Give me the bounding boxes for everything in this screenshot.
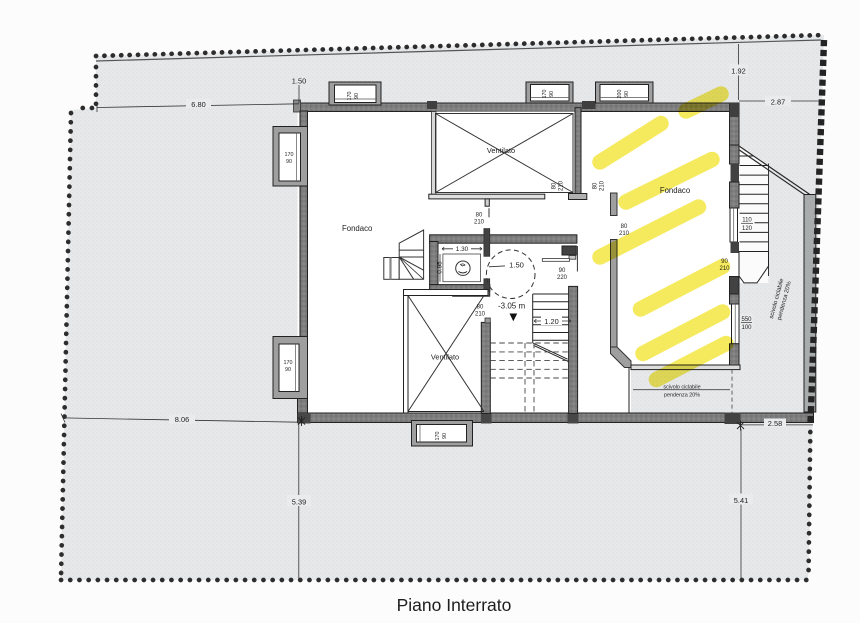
svg-text:8.06: 8.06 bbox=[175, 415, 189, 424]
svg-text:100: 100 bbox=[741, 325, 752, 331]
svg-text:90: 90 bbox=[549, 91, 555, 97]
svg-text:90: 90 bbox=[624, 91, 630, 97]
svg-text:1.50: 1.50 bbox=[292, 77, 306, 86]
svg-text:2.58: 2.58 bbox=[768, 419, 782, 428]
svg-text:Ventilato: Ventilato bbox=[487, 146, 515, 155]
svg-text:scivolo ciclabile: scivolo ciclabile bbox=[663, 384, 700, 390]
svg-text:90: 90 bbox=[286, 159, 292, 165]
svg-text:210: 210 bbox=[474, 220, 485, 226]
svg-text:1.92: 1.92 bbox=[731, 67, 745, 76]
svg-text:6.80: 6.80 bbox=[191, 100, 205, 109]
svg-text:1.30: 1.30 bbox=[456, 246, 469, 253]
svg-text:pendenza 20%: pendenza 20% bbox=[664, 392, 700, 398]
svg-text:5.41: 5.41 bbox=[734, 496, 748, 505]
svg-text:Fondaco: Fondaco bbox=[342, 224, 373, 233]
svg-text:80: 80 bbox=[552, 182, 558, 189]
svg-text:0.95: 0.95 bbox=[437, 261, 444, 274]
svg-text:200: 200 bbox=[617, 90, 623, 99]
svg-text:Piano Interrato: Piano Interrato bbox=[397, 595, 512, 615]
svg-text:170: 170 bbox=[285, 152, 294, 158]
svg-text:220: 220 bbox=[557, 275, 568, 281]
svg-text:80: 80 bbox=[477, 305, 484, 311]
svg-text:80: 80 bbox=[476, 213, 483, 219]
svg-text:90: 90 bbox=[442, 433, 448, 439]
svg-text:5.39: 5.39 bbox=[292, 498, 306, 507]
svg-text:210: 210 bbox=[559, 180, 565, 191]
svg-text:90: 90 bbox=[559, 268, 566, 274]
svg-text:80: 80 bbox=[621, 224, 628, 230]
svg-text:1.20: 1.20 bbox=[544, 317, 558, 326]
svg-text:Fondaco: Fondaco bbox=[660, 186, 691, 195]
svg-text:170: 170 bbox=[284, 360, 293, 366]
svg-text:Ventilato: Ventilato bbox=[431, 353, 459, 362]
svg-text:80: 80 bbox=[593, 182, 599, 189]
svg-text:110: 110 bbox=[742, 218, 752, 224]
svg-text:210: 210 bbox=[600, 180, 606, 191]
svg-text:550: 550 bbox=[741, 317, 752, 323]
svg-text:1.50: 1.50 bbox=[509, 261, 524, 270]
svg-text:90: 90 bbox=[354, 93, 360, 99]
svg-text:170: 170 bbox=[347, 92, 353, 101]
svg-text:-3.05 m: -3.05 m bbox=[498, 302, 525, 311]
svg-text:170: 170 bbox=[542, 90, 548, 99]
svg-text:170: 170 bbox=[435, 432, 441, 441]
svg-text:90: 90 bbox=[285, 367, 291, 373]
svg-text:210: 210 bbox=[475, 312, 486, 318]
svg-text:2.87: 2.87 bbox=[771, 98, 785, 107]
svg-text:120: 120 bbox=[742, 226, 753, 232]
